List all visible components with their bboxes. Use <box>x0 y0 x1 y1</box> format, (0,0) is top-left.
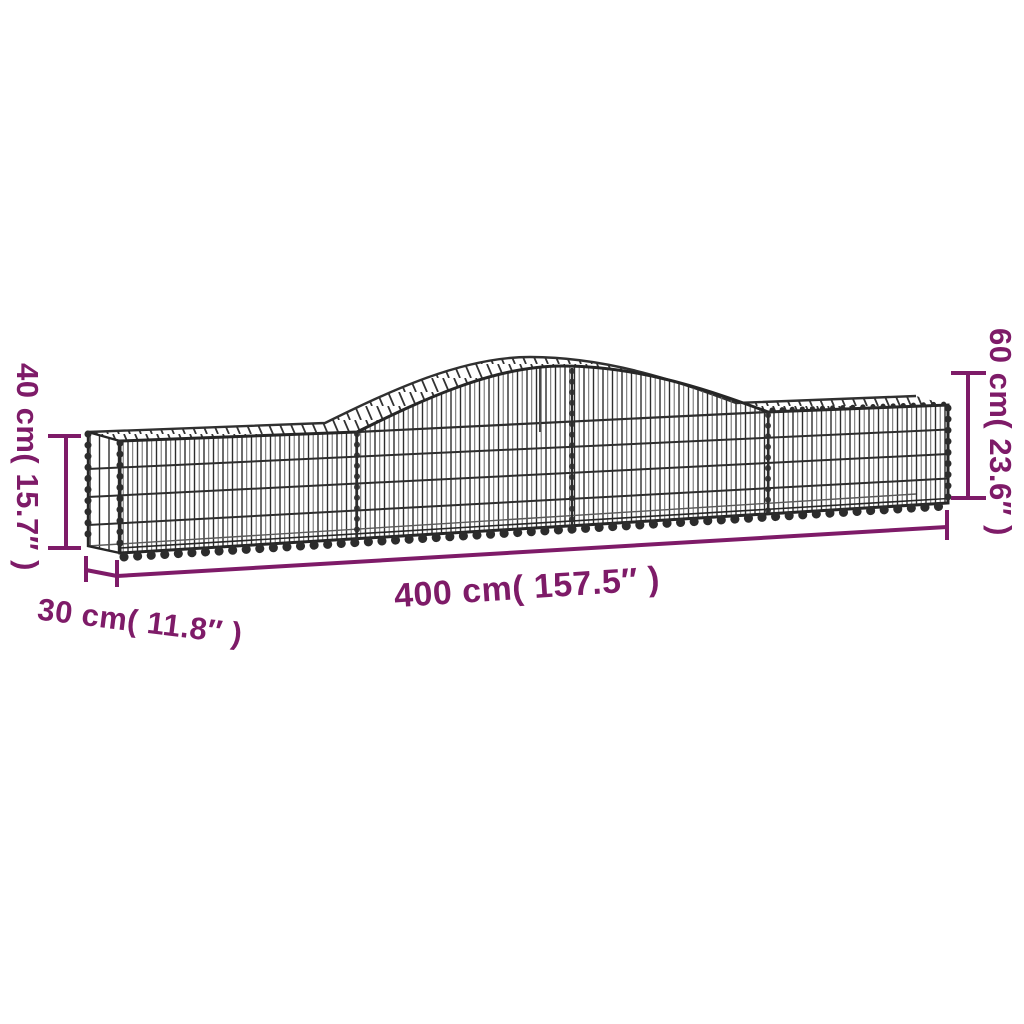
dimension-height-left-label: 40 cm( 15.7″ ) <box>9 363 45 571</box>
dimension-depth-line <box>86 556 117 582</box>
dimension-height-right-label: 60 cm( 23.6″ ) <box>982 328 1018 536</box>
gabion-basket-illustration <box>0 0 1024 1024</box>
product-dimension-diagram: 40 cm( 15.7″ ) 60 cm( 23.6″ ) 400 cm( 15… <box>0 0 1024 1024</box>
dimension-height-right-line <box>951 373 986 498</box>
dimension-height-left-line <box>48 436 81 548</box>
